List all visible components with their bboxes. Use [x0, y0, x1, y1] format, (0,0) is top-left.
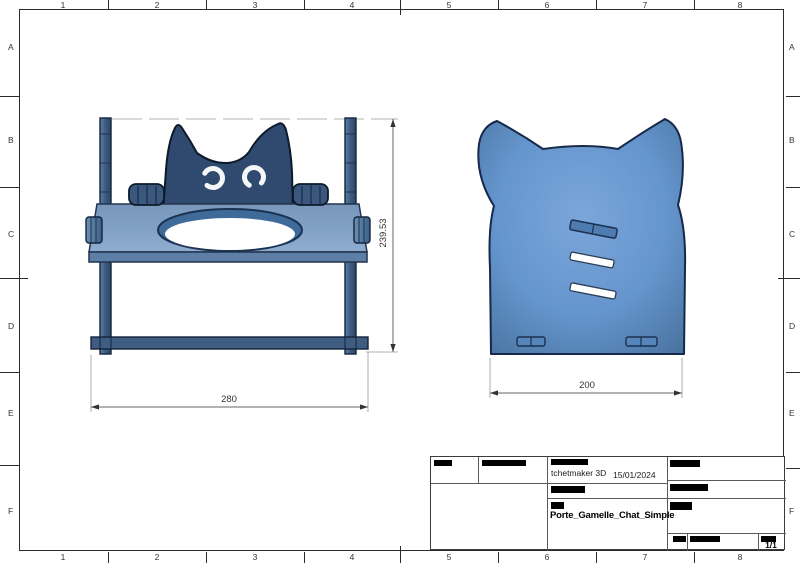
arrowhead — [674, 390, 682, 395]
redacted-field — [673, 536, 686, 542]
arrowhead — [91, 404, 99, 409]
sheet-number: 1/1 — [758, 540, 784, 550]
title-block-divider — [687, 533, 688, 551]
drawing-sheet: 1 2 3 4 5 6 7 8 1 2 3 4 5 6 7 8 A B C D … — [0, 0, 800, 563]
front-view — [86, 118, 398, 354]
title-block-divider — [547, 457, 548, 551]
redacted-field — [551, 486, 585, 493]
title-block: tchetmaker 3D 15/01/2024 Porte_Gamelle_C… — [430, 456, 785, 550]
bowl-hole — [165, 218, 295, 250]
redacted-field — [434, 460, 452, 466]
redacted-field — [690, 536, 720, 542]
title-block-divider — [478, 457, 479, 483]
title-block-divider — [431, 483, 547, 484]
redacted-field — [551, 502, 564, 509]
title-block-divider — [547, 498, 667, 499]
panel-bottom-tab-left — [517, 337, 545, 346]
cat-right-paw — [293, 184, 328, 205]
dim-width-label: 280 — [221, 394, 237, 405]
arrowhead — [390, 344, 395, 352]
redacted-field — [670, 460, 700, 467]
left-knob — [86, 217, 102, 243]
right-knob — [354, 217, 370, 243]
cat-head-silhouette — [163, 123, 293, 212]
panel-bottom-tab-right — [626, 337, 657, 346]
redacted-field — [551, 459, 588, 465]
title-block-divider — [667, 498, 786, 499]
side-view — [478, 119, 685, 354]
redacted-field — [482, 460, 526, 466]
arrowhead — [360, 404, 368, 409]
bottom-cross-bar — [91, 337, 368, 349]
arrowhead — [390, 119, 395, 127]
part-name: Porte_Gamelle_Chat_Simple — [550, 510, 674, 521]
drawing-date: 15/01/2024 — [613, 470, 656, 480]
title-block-divider — [547, 483, 667, 484]
dim-side-width-label: 200 — [579, 380, 595, 391]
platform-front-edge — [89, 252, 367, 262]
title-block-divider — [667, 457, 668, 551]
author-name: tchetmaker 3D — [551, 468, 606, 478]
redacted-field — [670, 502, 692, 510]
title-block-divider — [667, 533, 786, 534]
title-block-divider — [667, 480, 786, 481]
dim-height-label: 239.53 — [378, 218, 389, 247]
cat-panel-outline — [478, 119, 685, 354]
redacted-field — [670, 484, 708, 491]
cat-left-paw — [129, 184, 164, 205]
arrowhead — [490, 390, 498, 395]
